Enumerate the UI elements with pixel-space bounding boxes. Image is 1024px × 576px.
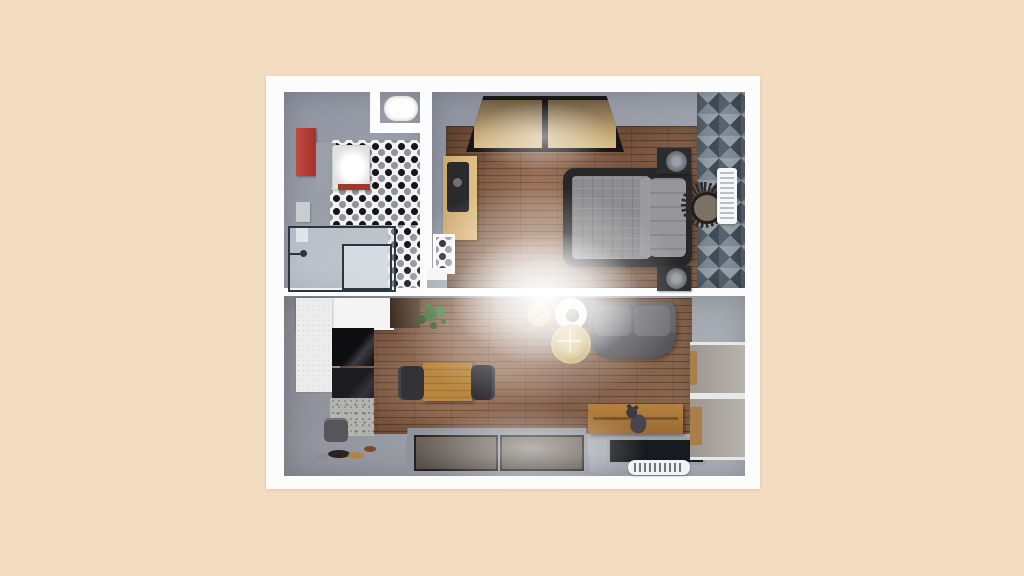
dining-chair-left [398,366,424,400]
bottom-window-pane-right [500,435,584,471]
bedroom-top-window [466,96,624,152]
tray-table-gold [527,303,551,327]
shower-arm [290,253,300,255]
bottom-window-pane-left [414,435,498,471]
vanity-cabinet-red [296,128,316,176]
tray-utensil [533,310,546,320]
double-bed [563,168,692,267]
pet-bowl-rust [364,446,376,452]
toilet [384,96,418,121]
shower-head [300,250,307,257]
radiator-grille [720,172,734,220]
window-pane-right [548,100,616,148]
desk-chair [447,162,469,212]
toilet-niche-wall-h [370,123,426,133]
table-plant [566,309,579,322]
vent-grille [634,463,684,472]
floor-vent [628,460,690,475]
cooktop [332,328,374,366]
pet-bowl-tan [348,452,364,459]
sink-red-shelf [338,184,370,190]
plant [424,308,437,321]
dining-table [423,362,472,401]
cat [622,404,652,436]
radiator [717,168,737,224]
bed-duvet [650,178,686,257]
kitchen-counter-side [296,298,332,392]
desk-item [453,178,462,187]
table-lamp-bottom [665,267,688,290]
bottom-window [404,428,590,474]
dining-chair-right [471,365,495,400]
trash-bin [324,418,348,442]
coffee-table-leg-h [557,340,581,342]
floor-plan [266,76,760,489]
window-pane-left [474,100,542,148]
coffee-table-gold [551,324,591,364]
sofa-cushion-right [634,306,670,336]
shower-glass-panel [342,244,392,290]
render-canvas [0,0,1024,576]
right-window-upper [690,342,745,396]
cat-ear-right [633,405,639,411]
right-window-lower [690,396,745,460]
toiletry-shelf [296,202,310,222]
sofa-cushion-left [595,306,631,336]
table-lamp-top [665,150,688,173]
pet-bowls [316,444,396,464]
wall-cabinet [390,298,420,328]
appliance-column [332,328,374,408]
pet-bowl-dark [328,450,350,458]
corner-cabinet [427,268,447,288]
desk [443,156,477,240]
pet-bowl-gray [316,454,328,460]
mattress [572,176,650,259]
sofa [588,302,676,358]
right-window-lower-sill [690,407,702,445]
right-window-upper-sill [690,351,697,385]
shower-enclosure [288,226,396,292]
